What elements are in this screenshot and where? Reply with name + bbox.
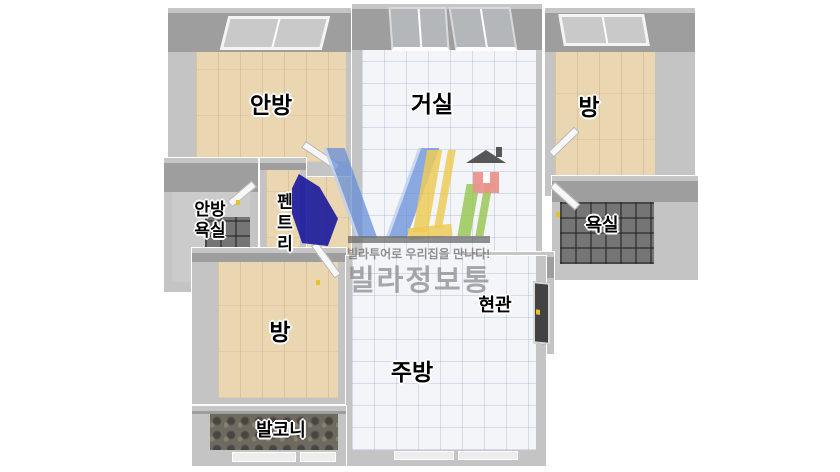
living-room-window-left [388,7,449,51]
balcony-window-sill-right [300,452,336,462]
kitchen-floor [352,256,536,450]
entrance-door-handle [536,309,540,314]
entrance-door [533,281,550,345]
living-room-floor [362,50,536,260]
master-bathroom-label-line2: 욕실 [194,220,225,241]
master-bedroom-label: 안방 [250,86,292,120]
window-pane-divider [480,9,488,47]
master-bathroom-label-line1: 안방 [194,199,225,220]
window-pane-divider [602,17,609,43]
room-top-right: 방 [545,8,695,196]
bathroom-door-handle [556,212,560,217]
window-pane-divider [418,9,423,47]
kitchen-window-sill-right [458,451,518,460]
room-bottom-left-label: 방 [269,313,290,347]
room-top-right-floor [555,52,655,186]
living-room-window-right [449,7,518,51]
room-bottom-left-door-handle [316,280,320,285]
kitchen-label: 주방 [391,353,433,387]
floorplan-image: 안방 거실 방 안방 욕실 펜트리 욕실 현관 [0,0,840,472]
pantry-label: 펜트리 [273,193,294,256]
room-bottom-left: 방 [192,248,346,404]
room-master-bedroom: 안방 [168,8,352,176]
balcony-window-sill-left [232,452,296,462]
room-living: 거실 [352,4,542,260]
entrance-label: 현관 [478,291,511,317]
master-bedroom-window [220,16,330,50]
room-top-right-label: 방 [578,88,599,122]
window-pane-divider [272,19,281,47]
kitchen-window-sill-left [394,451,454,460]
balcony-label: 발코니 [256,416,306,442]
master-bathroom-label: 안방 욕실 [194,199,225,241]
room-kitchen: 주방 [346,256,546,466]
room-top-right-window [558,14,650,46]
living-room-label: 거실 [411,85,453,119]
bathroom-label: 욕실 [585,211,618,237]
room-balcony: 발코니 [192,406,346,466]
master-bathroom-door-handle [236,200,240,205]
room-bathroom: 욕실 [552,176,698,280]
